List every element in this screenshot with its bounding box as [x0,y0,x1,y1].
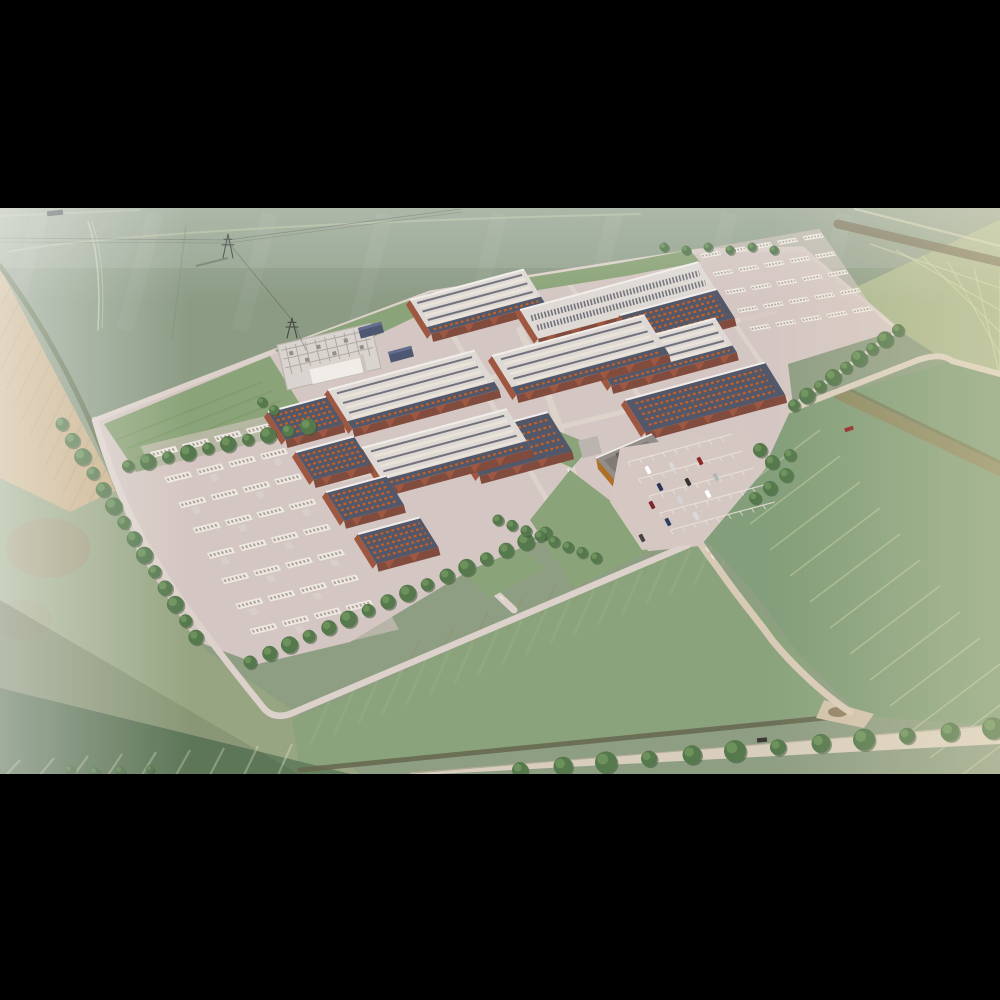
aerial-photo-render [0,208,1000,774]
aerial-photo [0,208,1000,774]
letterbox-top-bar [0,0,1000,208]
screenshot-frame [0,0,1000,1000]
letterbox-bottom-bar [0,774,1000,1000]
aerial-scene-svg [0,208,1000,774]
atmospheric-haze [0,208,1000,774]
